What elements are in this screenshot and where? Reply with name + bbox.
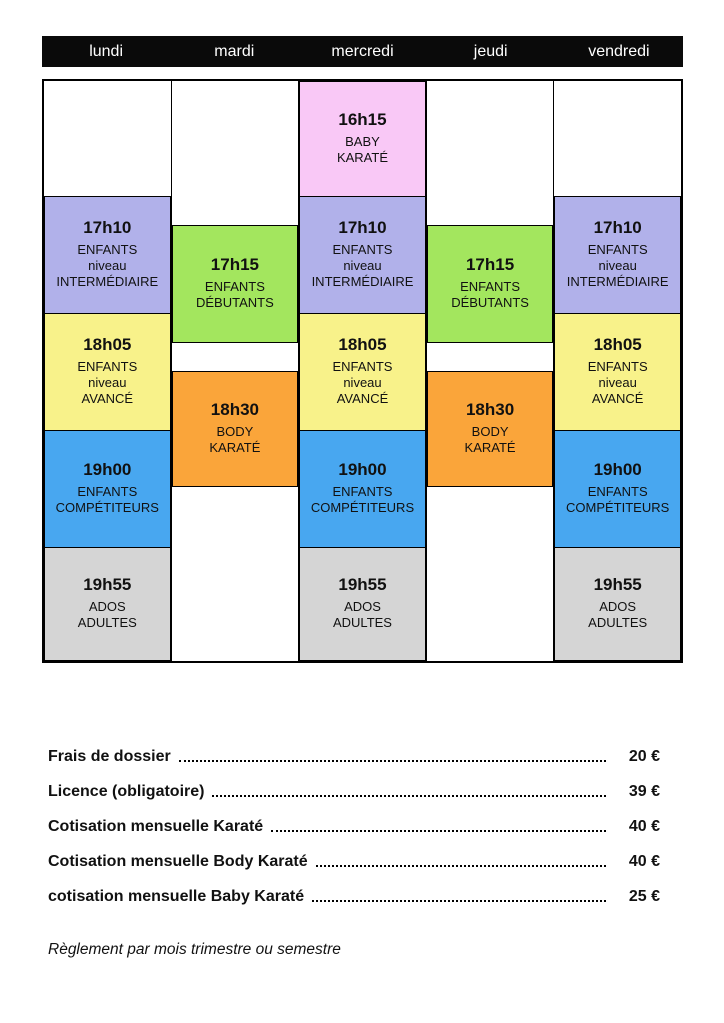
class-time: 19h00	[83, 462, 131, 478]
class-time: 18h05	[83, 337, 131, 353]
day-label-vendredi: vendredi	[555, 36, 683, 67]
class-label-line: ADOS	[344, 599, 381, 615]
class-label-line: niveau	[88, 258, 126, 274]
class-time: 19h00	[338, 462, 386, 478]
class-label-line: ENFANTS	[333, 484, 393, 500]
price-row-licence: Licence (obligatoire) 39 €	[48, 774, 660, 809]
class-label-line: AVANCÉ	[82, 391, 134, 407]
dotted-leader	[271, 830, 606, 832]
price-label: Frais de dossier	[48, 748, 171, 766]
class-block-enfants-debutants: 17h15 ENFANTS DÉBUTANTS	[172, 225, 299, 343]
dotted-leader	[312, 900, 606, 902]
column-mardi: 17h15 ENFANTS DÉBUTANTS 18h30 BODY KARAT…	[172, 81, 300, 661]
class-time: 19h55	[594, 577, 642, 593]
class-time: 17h10	[338, 220, 386, 236]
class-label-line: COMPÉTITEURS	[566, 500, 669, 516]
class-label-line: DÉBUTANTS	[196, 295, 274, 311]
price-row-cotisation-body-karate: Cotisation mensuelle Body Karaté 40 €	[48, 844, 660, 879]
class-time: 17h10	[594, 220, 642, 236]
class-block-ados-adultes: 19h55 ADOS ADULTES	[299, 547, 426, 661]
class-block-enfants-avance: 18h05 ENFANTS niveau AVANCÉ	[44, 313, 171, 431]
class-block-enfants-intermediaire: 17h10 ENFANTS niveau INTERMÉDIAIRE	[44, 196, 171, 314]
day-label-mercredi: mercredi	[298, 36, 426, 67]
class-time: 19h00	[594, 462, 642, 478]
class-label-line: ENFANTS	[588, 484, 648, 500]
class-time: 17h15	[466, 257, 514, 273]
class-time: 18h05	[594, 337, 642, 353]
class-time: 19h55	[83, 577, 131, 593]
column-vendredi: 17h10 ENFANTS niveau INTERMÉDIAIRE 18h05…	[554, 81, 681, 661]
class-label-line: KARATÉ	[337, 150, 388, 166]
price-row-frais-de-dossier: Frais de dossier 20 €	[48, 739, 660, 774]
price-label: Licence (obligatoire)	[48, 783, 204, 801]
class-label-line: COMPÉTITEURS	[56, 500, 159, 516]
class-label-line: BODY	[472, 424, 509, 440]
class-label-line: niveau	[88, 375, 126, 391]
class-label-line: ADOS	[89, 599, 126, 615]
class-label-line: INTERMÉDIAIRE	[567, 274, 669, 290]
class-label-line: AVANCÉ	[337, 391, 389, 407]
class-label-line: BODY	[216, 424, 253, 440]
class-block-enfants-debutants: 17h15 ENFANTS DÉBUTANTS	[427, 225, 554, 343]
class-block-enfants-competiteurs: 19h00 ENFANTS COMPÉTITEURS	[554, 430, 681, 548]
class-block-body-karate: 18h30 BODY KARATÉ	[172, 371, 299, 487]
class-time: 18h30	[466, 402, 514, 418]
day-header-bar: lundi mardi mercredi jeudi vendredi	[42, 36, 683, 67]
price-label: Cotisation mensuelle Karaté	[48, 818, 263, 836]
pricing-list: Frais de dossier 20 € Licence (obligatoi…	[48, 739, 660, 914]
class-label-line: niveau	[343, 258, 381, 274]
payment-note: Règlement par mois trimestre ou semestre	[48, 941, 341, 959]
day-label-jeudi: jeudi	[427, 36, 555, 67]
class-label-line: INTERMÉDIAIRE	[56, 274, 158, 290]
column-jeudi: 17h15 ENFANTS DÉBUTANTS 18h30 BODY KARAT…	[427, 81, 555, 661]
class-label-line: ADOS	[599, 599, 636, 615]
class-label-line: niveau	[599, 258, 637, 274]
class-label-line: ENFANTS	[588, 242, 648, 258]
day-label-lundi: lundi	[42, 36, 170, 67]
class-label-line: ENFANTS	[333, 359, 393, 375]
price-label: cotisation mensuelle Baby Karaté	[48, 888, 304, 906]
class-time: 18h30	[211, 402, 259, 418]
class-block-enfants-intermediaire: 17h10 ENFANTS niveau INTERMÉDIAIRE	[299, 196, 426, 314]
class-block-baby-karate: 16h15 BABY KARATÉ	[299, 81, 426, 197]
price-value: 39 €	[616, 783, 660, 801]
class-label-line: KARATÉ	[465, 440, 516, 456]
price-row-cotisation-karate: Cotisation mensuelle Karaté 40 €	[48, 809, 660, 844]
price-value: 40 €	[616, 818, 660, 836]
column-lundi: 17h10 ENFANTS niveau INTERMÉDIAIRE 18h05…	[44, 81, 172, 661]
class-time: 17h10	[83, 220, 131, 236]
day-label-mardi: mardi	[170, 36, 298, 67]
class-label-line: INTERMÉDIAIRE	[312, 274, 414, 290]
class-time: 19h55	[338, 577, 386, 593]
price-label: Cotisation mensuelle Body Karaté	[48, 853, 308, 871]
price-value: 20 €	[616, 748, 660, 766]
dotted-leader	[212, 795, 606, 797]
class-block-enfants-avance: 18h05 ENFANTS niveau AVANCÉ	[299, 313, 426, 431]
schedule-grid: 17h10 ENFANTS niveau INTERMÉDIAIRE 18h05…	[42, 79, 683, 663]
class-block-body-karate: 18h30 BODY KARATÉ	[427, 371, 554, 487]
class-time: 18h05	[338, 337, 386, 353]
class-block-enfants-competiteurs: 19h00 ENFANTS COMPÉTITEURS	[44, 430, 171, 548]
class-label-line: ENFANTS	[205, 279, 265, 295]
price-row-cotisation-baby-karate: cotisation mensuelle Baby Karaté 25 €	[48, 879, 660, 914]
class-label-line: niveau	[599, 375, 637, 391]
class-label-line: ADULTES	[588, 615, 647, 631]
class-label-line: ENFANTS	[588, 359, 648, 375]
class-time: 17h15	[211, 257, 259, 273]
class-time: 16h15	[338, 112, 386, 128]
class-block-ados-adultes: 19h55 ADOS ADULTES	[554, 547, 681, 661]
class-block-ados-adultes: 19h55 ADOS ADULTES	[44, 547, 171, 661]
class-block-enfants-avance: 18h05 ENFANTS niveau AVANCÉ	[554, 313, 681, 431]
class-label-line: niveau	[343, 375, 381, 391]
class-label-line: AVANCÉ	[592, 391, 644, 407]
class-label-line: ADULTES	[333, 615, 392, 631]
class-label-line: ENFANTS	[460, 279, 520, 295]
class-label-line: ENFANTS	[333, 242, 393, 258]
column-mercredi: 16h15 BABY KARATÉ 17h10 ENFANTS niveau I…	[299, 81, 427, 661]
price-value: 40 €	[616, 853, 660, 871]
class-label-line: BABY	[345, 134, 380, 150]
class-label-line: ENFANTS	[77, 484, 137, 500]
class-block-enfants-intermediaire: 17h10 ENFANTS niveau INTERMÉDIAIRE	[554, 196, 681, 314]
schedule-page: lundi mardi mercredi jeudi vendredi 17h1…	[0, 0, 724, 1023]
class-label-line: ENFANTS	[77, 359, 137, 375]
price-value: 25 €	[616, 888, 660, 906]
class-label-line: ADULTES	[78, 615, 137, 631]
dotted-leader	[316, 865, 606, 867]
class-label-line: ENFANTS	[77, 242, 137, 258]
dotted-leader	[179, 760, 606, 762]
class-label-line: KARATÉ	[209, 440, 260, 456]
class-block-enfants-competiteurs: 19h00 ENFANTS COMPÉTITEURS	[299, 430, 426, 548]
class-label-line: DÉBUTANTS	[451, 295, 529, 311]
class-label-line: COMPÉTITEURS	[311, 500, 414, 516]
